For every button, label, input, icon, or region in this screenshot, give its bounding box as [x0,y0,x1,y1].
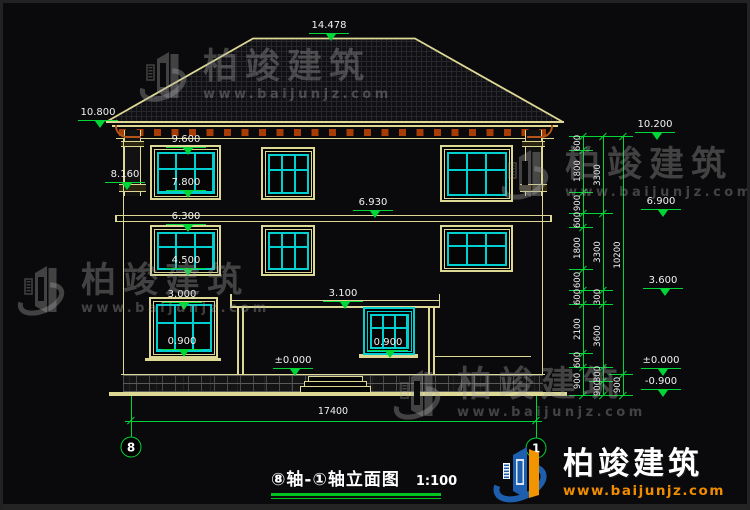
level-triangle-icon [179,350,189,362]
level-triangle-icon [183,225,193,237]
entry-step-1 [308,376,363,382]
dim-value: 300 [593,289,603,305]
dim-chain-line [583,136,584,395]
porch-roof-left-tick [230,294,232,307]
dim-value: 600 [573,135,583,151]
porch-post-right-a [428,307,430,374]
brand-name: 柏竣建筑 [563,449,725,480]
level-value: 10.800 [81,107,116,118]
dim-value: 900 [593,380,603,396]
level-triangle-icon [370,211,380,223]
drawing-scale: 1:100 [416,474,457,489]
level-triangle-icon [658,210,668,222]
cad-elevation-drawing: 14.47810.8009.6008.1607.8006.3006.9304.5… [0,0,750,510]
level-value: 9.600 [172,134,201,145]
level-value: 8.160 [111,169,140,180]
porch-roof-right-tick [439,294,441,307]
level-triangle-icon [179,303,189,315]
level-value: 6.900 [647,196,676,207]
title-underline-thick [271,493,441,496]
level-value: ±0.000 [642,355,679,366]
dim-value: 600 [573,352,583,368]
level-triangle-icon [183,191,193,203]
level-value: 4.500 [172,255,201,266]
dim-value: 3300 [593,241,603,263]
level-triangle-icon [652,133,662,145]
level-triangle-icon [183,269,193,281]
fascia-top-line [112,125,558,127]
bottom-frame-strip [3,504,750,510]
right-wall-line [542,138,544,375]
level-triangle-icon [290,369,300,381]
belt-cap-right [550,215,552,222]
dim-value: 900 [573,194,583,210]
dim-value: 600 [573,271,583,287]
axis-bubble-8: 8 [121,437,142,458]
window-panes [447,152,507,196]
belt-cap-left [115,215,117,222]
porch-post-left-b [242,307,244,374]
window-panes [268,154,309,194]
level-value: 6.930 [359,197,388,208]
level-triangle-icon [183,148,193,160]
left-pilaster-cap-top [121,141,144,147]
bottom-dimension-line [125,421,542,422]
roof-outline [3,3,750,510]
eave-line [106,121,564,123]
drawing-title-block: ⑧轴-①轴立面图 1:100 [271,465,457,499]
level-value: 6.300 [172,211,201,222]
dim-chain-line [603,136,604,395]
ground-line [109,392,567,396]
window-panes [268,232,309,270]
brand-logo-icon [493,441,557,507]
brand-logo: 柏竣建筑 www.baijunjz.com [493,441,725,507]
dim-value: 3300 [593,164,603,186]
dim-value: 1800 [573,160,583,182]
level-value: ±0.000 [274,355,311,366]
dim-value: 600 [573,212,583,228]
level-value: 0.900 [168,336,197,347]
dim-value: 2100 [573,318,583,340]
bottom-dimension-text: 17400 [318,406,348,417]
level-value: 7.800 [172,177,201,188]
level-triangle-icon [340,302,350,314]
drawing-title: ⑧轴-①轴立面图 [271,465,400,490]
window [261,147,315,200]
level-triangle-icon [122,183,132,195]
level-triangle-icon [660,289,670,301]
dim-value: 900 [573,373,583,389]
level-value: 3.100 [329,288,358,299]
window [440,145,513,202]
dim-value: 600 [573,289,583,305]
level-value: -0.900 [645,376,677,387]
window-panes [447,232,507,266]
level-value: 3.000 [168,289,197,300]
porch-low-wall-line [433,356,531,358]
window [440,225,513,272]
level-triangle-icon [658,390,668,402]
level-triangle-icon [326,34,336,46]
level-value: 10.200 [638,119,673,130]
porch-post-right-b [433,307,435,374]
level-value: 14.478 [312,20,347,31]
porch-post-left-a [237,307,239,374]
dim-value: 3600 [593,325,603,347]
dim-value: 10200 [613,241,623,268]
level-value: 0.900 [374,337,403,348]
dim-value: 900 [613,376,623,392]
axis-extension-left [131,396,132,437]
level-value: 3.600 [649,275,678,286]
title-underline-thin [271,498,441,499]
dim-value: 1800 [573,237,583,259]
window [261,225,315,276]
brand-url: www.baijunjz.com [563,483,725,499]
level-triangle-icon [95,121,105,133]
dim-chain-line [623,136,624,395]
level-triangle-icon [385,351,395,363]
